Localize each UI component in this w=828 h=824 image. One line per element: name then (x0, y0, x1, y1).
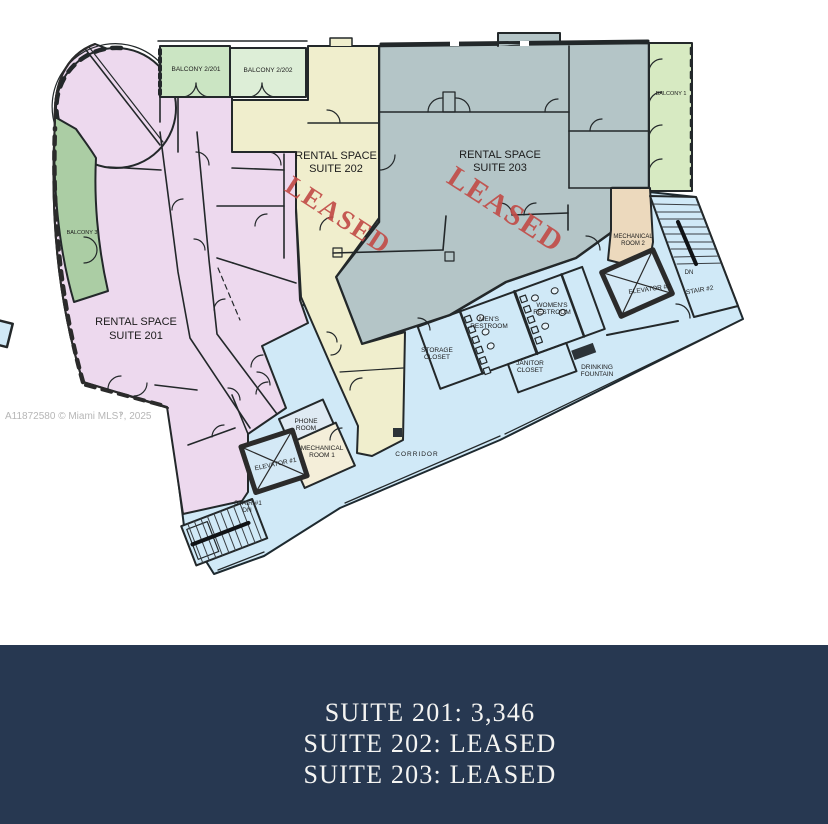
svg-text:RENTAL SPACE: RENTAL SPACE (459, 149, 541, 161)
svg-text:BALCONY 1: BALCONY 1 (656, 91, 687, 97)
svg-text:DRINKING: DRINKING (581, 364, 613, 371)
svg-text:CLOSET: CLOSET (424, 354, 450, 361)
svg-text:ROOM: ROOM (296, 425, 316, 432)
svg-text:FOUNTAIN: FOUNTAIN (581, 371, 614, 378)
svg-text:SUITE 203: SUITE 203 (473, 162, 527, 174)
svg-text:RENTAL SPACE: RENTAL SPACE (295, 150, 377, 162)
svg-text:MECHANICAL: MECHANICAL (301, 445, 344, 452)
svg-text:DN: DN (685, 270, 694, 276)
svg-text:A11872580 © Miami MLS‽, 2025: A11872580 © Miami MLS‽, 2025 (5, 411, 152, 422)
svg-text:MECHANICAL: MECHANICAL (613, 234, 653, 240)
svg-text:BALCONY 2/201: BALCONY 2/201 (171, 66, 220, 73)
svg-text:STORAGE: STORAGE (421, 347, 453, 354)
svg-text:SUITE 201: SUITE 201 (109, 330, 163, 342)
svg-text:BALCONY 3: BALCONY 3 (67, 230, 98, 236)
svg-text:CLOSET: CLOSET (517, 367, 543, 374)
svg-text:WOMEN'S: WOMEN'S (536, 302, 568, 309)
svg-text:RENTAL SPACE: RENTAL SPACE (95, 316, 177, 328)
svg-text:ROOM 1: ROOM 1 (309, 452, 335, 459)
svg-text:PHONE: PHONE (294, 418, 318, 425)
svg-text:SUITE 202: SUITE 202 (309, 163, 363, 175)
svg-text:CORRIDOR: CORRIDOR (395, 451, 438, 458)
svg-text:MEN'S: MEN'S (479, 316, 500, 323)
svg-text:JANITOR: JANITOR (516, 360, 544, 367)
svg-text:RESTROOM: RESTROOM (533, 309, 571, 316)
svg-text:RESTROOM: RESTROOM (470, 323, 508, 330)
svg-text:BALCONY 2/202: BALCONY 2/202 (243, 67, 292, 74)
svg-text:ROOM 2: ROOM 2 (621, 241, 645, 247)
svg-text:DN: DN (242, 507, 252, 514)
svg-text:STAIR #1: STAIR #1 (234, 500, 262, 507)
